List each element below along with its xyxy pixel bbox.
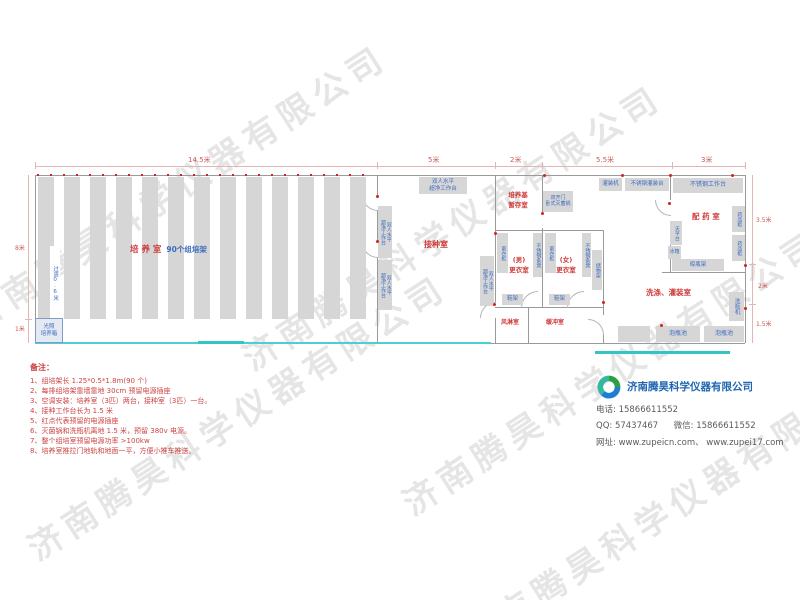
wall [377,175,378,195]
soak-pool-box: 泡瓶池 [656,326,700,342]
dimension-tick [749,264,756,265]
ss-worktable-box: 不锈钢工作台 [673,178,743,193]
power-outlet-dot [669,174,672,177]
notes-block: 备注： 1、组培架长 1.25*0.5*1.8m(90 个) 2、每排组培架靠墙… [30,362,211,456]
bottle-washer-box: 洗瓶机 [729,292,744,321]
note-item: 8、培养室推拉门地轨和地面一平，方便小推车推送。 [30,446,211,456]
company-wechat: 微信: 15866611552 [674,421,756,431]
wall [495,175,496,302]
room-label-buffer: 缓冲室 [546,317,564,326]
dimension-tick [377,162,378,169]
wall-bottom [490,343,745,344]
power-outlet-dot [744,264,747,267]
sliding-door [595,351,730,354]
fridge-box: 冰箱 [668,246,681,259]
company-logo [596,374,622,400]
power-outlet-dots-row [37,174,367,176]
door-arc [588,319,604,335]
wall [542,228,543,307]
dimension-label: 5.5米 [596,155,614,165]
equipment-box [618,326,650,342]
note-item: 7、整个组培室预留电源功率 >100kw [30,436,211,446]
dimension-label: 1米 [15,324,25,333]
dimension-label: 2米 [510,155,521,165]
note-item: 1、组培架长 1.25*0.5*1.8m(90 个) [30,376,211,386]
clean-bench-box: 双人水平 超净工作台 [378,206,392,258]
power-outlet-dot [493,303,496,306]
company-qq-wechat: QQ: 57437467 微信: 15866611552 [596,419,784,431]
note-item: 4、接种工作台长为 1.5 米 [30,406,211,416]
company-qq: QQ: 57437467 [596,421,658,431]
room-label-inoculation: 接种室 [424,239,448,250]
dimension-tick [542,162,543,169]
medicine-cabinet-box: 药品柜 [732,235,745,261]
power-outlet-dot [543,174,546,177]
dimension-line-top [35,166,745,167]
note-item: 2、每排组培架靠墙靠地 30cm 预留电源插座 [30,386,211,396]
room-label-washing: 洗涤、灌装室 [646,287,691,298]
power-outlet-dot [731,174,734,177]
power-outlet-dot [541,212,544,215]
dimension-label: 14.5米 [188,155,211,165]
power-outlet-dot [668,202,671,205]
dimension-label: 5米 [428,155,439,165]
sliding-door [198,341,244,344]
power-outlet-dot [744,307,747,310]
dimension-label: 3.5米 [756,215,772,224]
ss-bench-box: 不锈钢条凳 [533,233,542,277]
clean-bench-box: 双人水平 超净工作台 [378,260,392,310]
power-outlet-dot [621,174,624,177]
power-outlet-dot [376,195,379,198]
room-label-air-shower: 风淋室 [501,317,519,326]
company-phone: 电话: 15866611552 [596,403,784,415]
filling-machine-box: 灌装机 [599,178,622,191]
room-label-dispensing: 配 药 室 [692,211,720,222]
floorplan-canvas: 济南腾昊科学仪器有限公司 济南腾昊科学仪器有限公司 济南腾昊科学仪器有限公司 济… [0,0,800,600]
sliding-door-track [35,342,491,344]
room-label-men-changing: (男) 更衣室 [504,255,534,276]
company-website: 网址: www.zupeicn.com、 www.zupei17.com [596,436,784,448]
power-outlet-dot [602,301,605,304]
ss-filling-table-box: 不锈钢灌装台 [625,178,669,191]
dimension-label: 2米 [758,281,768,290]
wall [528,307,529,343]
shoe-rack-box: 鞋架 [549,294,570,305]
room-label-women-changing: (女) 更衣室 [551,255,581,276]
note-item: 5、红点代表预留的电源插座 [30,416,211,426]
light-incubator-box: 光照 培养箱 [35,318,63,343]
dimension-tick [749,304,756,305]
room-label-medium-storage: 培养基 暂存室 [501,191,535,211]
dimension-label: 1.5米 [756,319,772,328]
dimension-tick [35,162,36,169]
soak-pool-box: 泡瓶池 [704,326,744,342]
dimension-tick [25,319,32,320]
culture-room-label: 培 养 室 90个组培架 [130,243,207,255]
wall [670,175,671,200]
sterilizer-box: 双开门 卧式灭菌锅 [543,191,573,212]
wall [495,318,496,343]
rack-count-label: 90个组培架 [166,244,206,255]
dimension-label: 8米 [15,243,25,252]
company-block: 济南腾昊科学仪器有限公司 电话: 15866611552 QQ: 5743746… [596,372,784,448]
ss-bench-box: 不锈钢条凳 [582,233,591,277]
wall-right [745,175,746,343]
notes-title: 备注： [30,362,211,373]
aisle-label: 过道0.6米 [50,246,60,320]
clean-bench-box: 双人水平 超净工作台 [480,256,494,306]
power-outlet-dot [376,240,379,243]
door-arc [521,291,538,308]
dimension-line-left [28,175,29,343]
company-name: 济南腾昊科学仪器有限公司 [627,379,753,394]
shoe-rack-box: 鞋架 [502,294,523,305]
wall [495,230,603,231]
wall [603,335,604,343]
dimension-tick [745,162,746,169]
power-outlet-dot [660,324,663,327]
room-label-culture: 培 养 室 [130,243,161,255]
bottle-drying-rack-box: 晾瓶架 [672,259,724,271]
wall [662,272,745,273]
balance-table-box: 天平台 [670,221,682,245]
medicine-cabinet-box: 药品柜 [732,206,745,232]
dimension-line-right [752,175,753,343]
clean-bench-box: 双人水平 超净工作台 [419,177,467,194]
power-outlet-dot [494,232,497,235]
note-item: 6、灭菌锅和洗瓶机离地 1.5 米，预留 380v 电源。 [30,426,211,436]
note-item: 3、空调安装：培养室（3匹）两台，接种室（3匹）一台。 [30,396,211,406]
dimension-label: 3米 [701,155,712,165]
dimension-tick [495,162,496,169]
wall [495,307,603,308]
storage-rack-box: 储物架 [592,250,602,290]
dimension-tick [672,162,673,169]
